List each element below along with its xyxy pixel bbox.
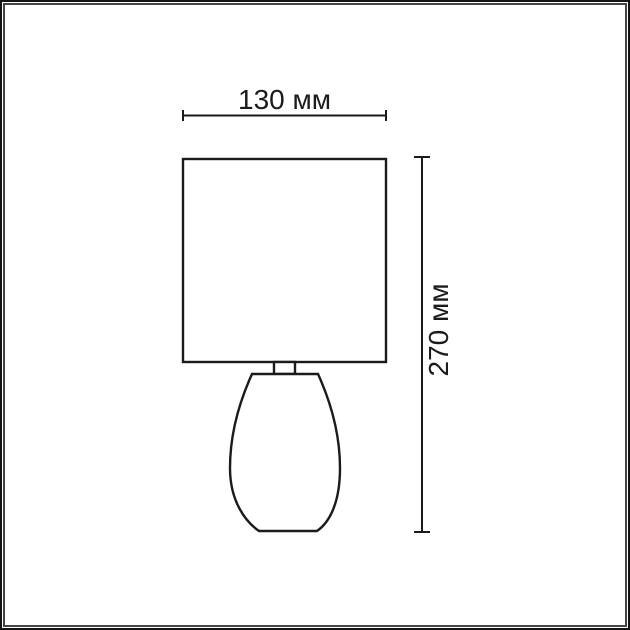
lampshade-outline (183, 159, 386, 362)
lamp-base-outline (230, 374, 340, 531)
width-dimension-label: 130 мм (183, 85, 386, 115)
lamp-neck-outline (274, 362, 295, 374)
height-dimension-label: 270 мм (424, 284, 454, 377)
